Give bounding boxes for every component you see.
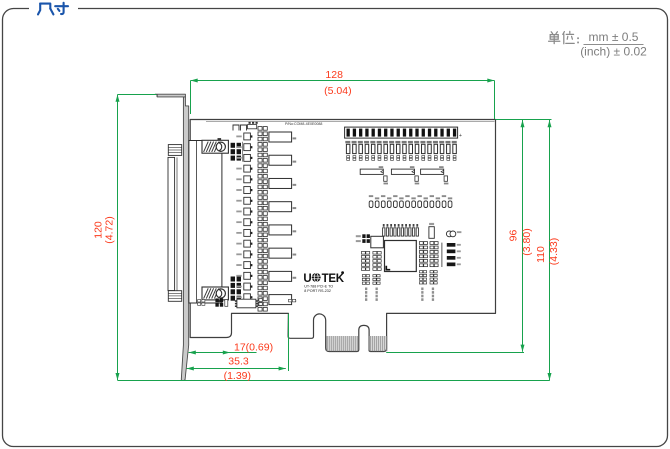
svg-text:110: 110 — [535, 246, 547, 263]
svg-text:(3.80): (3.80) — [521, 228, 533, 255]
svg-text:35.3: 35.3 — [228, 355, 249, 367]
svg-text:P/No:COM8-4E0E0088: P/No:COM8-4E0E0088 — [285, 122, 322, 126]
svg-text:128: 128 — [325, 69, 343, 81]
svg-text:(4.72): (4.72) — [103, 216, 115, 243]
svg-text:96: 96 — [508, 230, 520, 242]
svg-text:(inch) ± 0.02: (inch) ± 0.02 — [580, 45, 647, 59]
svg-text:(5.04): (5.04) — [324, 85, 351, 97]
svg-text:17(0.69): 17(0.69) — [234, 341, 273, 353]
svg-text:8 PORT RS-232: 8 PORT RS-232 — [304, 289, 331, 293]
svg-text:TEK: TEK — [322, 273, 345, 285]
svg-text:UT-788 PCI-E TO: UT-788 PCI-E TO — [304, 284, 333, 288]
svg-text:(1.39): (1.39) — [224, 370, 251, 382]
svg-text:(4.33): (4.33) — [548, 238, 560, 265]
svg-text:+: + — [459, 133, 462, 139]
svg-text:mm ± 0.5: mm ± 0.5 — [589, 30, 639, 44]
svg-text:U: U — [303, 273, 311, 285]
